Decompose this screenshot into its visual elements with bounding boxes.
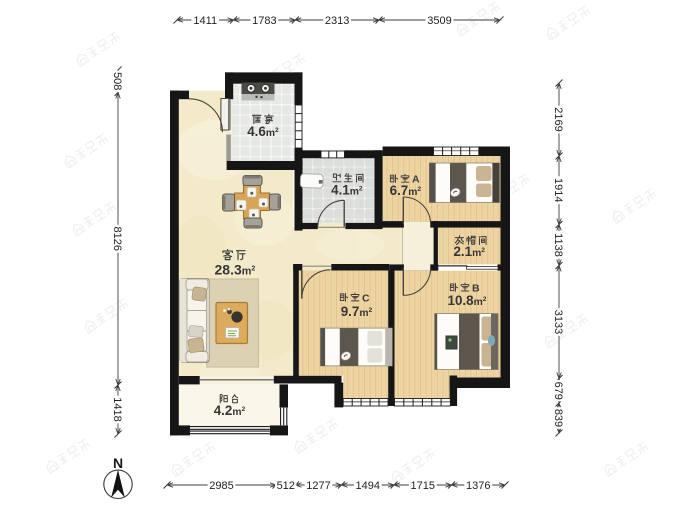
svg-text:2985: 2985	[209, 480, 233, 492]
svg-text:839: 839	[552, 409, 564, 427]
svg-text:6.7m2: 6.7m2	[390, 183, 422, 198]
svg-text:A: A	[412, 174, 420, 186]
svg-text:1914: 1914	[552, 178, 564, 202]
svg-text:1376: 1376	[466, 480, 490, 492]
svg-text:2313: 2313	[325, 15, 349, 27]
svg-text:N: N	[113, 455, 123, 471]
svg-text:1277: 1277	[306, 480, 330, 492]
svg-text:4.6m2: 4.6m2	[247, 124, 279, 139]
svg-text:1418: 1418	[111, 397, 123, 421]
svg-text:679: 679	[552, 382, 564, 400]
svg-text:512: 512	[277, 480, 295, 492]
svg-text:C: C	[362, 292, 370, 304]
svg-text:4.1m2: 4.1m2	[331, 183, 363, 198]
svg-text:4.2m2: 4.2m2	[214, 403, 246, 418]
svg-text:3133: 3133	[552, 310, 564, 334]
svg-text:2.1m2: 2.1m2	[453, 244, 485, 259]
svg-text:1494: 1494	[356, 480, 380, 492]
svg-text:1411: 1411	[193, 15, 217, 27]
svg-text:1715: 1715	[411, 480, 435, 492]
svg-text:9.7m2: 9.7m2	[341, 304, 373, 319]
svg-text:8126: 8126	[111, 227, 123, 251]
svg-text:2169: 2169	[552, 107, 564, 131]
svg-text:508: 508	[111, 72, 123, 90]
svg-text:1783: 1783	[252, 15, 276, 27]
svg-text:3509: 3509	[427, 15, 451, 27]
svg-text:1138: 1138	[552, 233, 564, 257]
